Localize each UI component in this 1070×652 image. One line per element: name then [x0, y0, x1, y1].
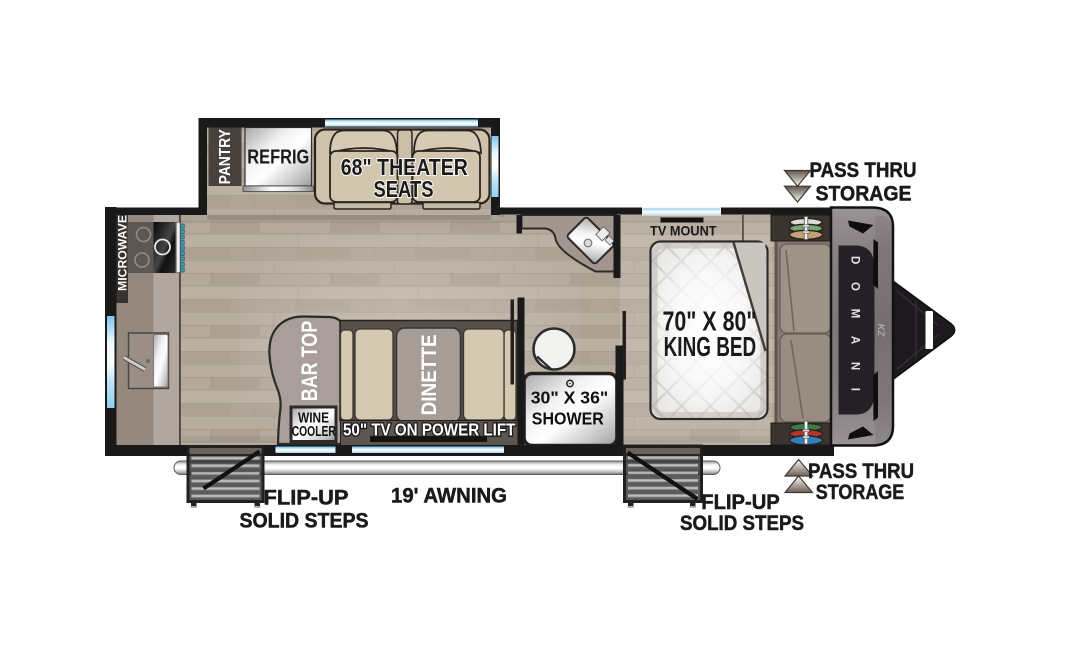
- svg-text:PANTRY: PANTRY: [217, 129, 234, 185]
- svg-text:KING BED: KING BED: [664, 331, 757, 362]
- svg-text:BAR TOP: BAR TOP: [297, 321, 322, 402]
- svg-text:MICROWAVE: MICROWAVE: [115, 215, 129, 291]
- svg-text:19' AWNING: 19' AWNING: [391, 483, 507, 507]
- svg-text:SEATS: SEATS: [374, 176, 434, 202]
- svg-text:COOLER: COOLER: [292, 424, 337, 440]
- svg-text:30" X 36": 30" X 36": [531, 388, 609, 408]
- svg-text:PASS THRU: PASS THRU: [810, 158, 917, 182]
- svg-text:SHOWER: SHOWER: [532, 409, 604, 429]
- svg-text:FLIP-UP: FLIP-UP: [264, 485, 349, 509]
- svg-text:STORAGE: STORAGE: [816, 181, 912, 205]
- svg-text:STORAGE: STORAGE: [816, 480, 905, 504]
- svg-text:50" TV ON POWER LIFT: 50" TV ON POWER LIFT: [343, 420, 516, 440]
- svg-text:SOLID STEPS: SOLID STEPS: [240, 508, 369, 532]
- svg-text:REFRIG: REFRIG: [247, 145, 309, 168]
- svg-text:SOLID STEPS: SOLID STEPS: [680, 511, 804, 535]
- svg-text:TV MOUNT: TV MOUNT: [650, 224, 717, 239]
- svg-text:DINETTE: DINETTE: [417, 334, 441, 415]
